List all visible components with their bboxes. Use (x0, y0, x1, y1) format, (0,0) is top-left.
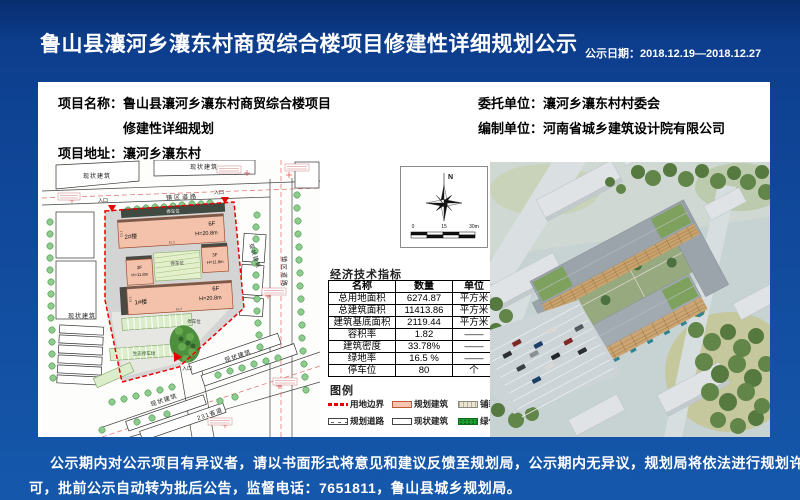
eco-parking-label: 生态停车场 (133, 350, 156, 357)
planned-road-swatch (328, 418, 348, 425)
paving-swatch (458, 401, 478, 408)
planned-buildings: 停车位 2#楼 6F H=20.8m 61.2 13.1 3F H=11.8m … (115, 203, 233, 316)
dim-label: 13.1 (119, 230, 123, 237)
col-name: 名称 (329, 281, 396, 293)
north-label: N (448, 174, 453, 181)
client-row: 委托单位：瀼河乡瀼东村村委会 (478, 93, 660, 112)
content-panel: 项目名称：鲁山县瀼河乡瀼东村商贸综合楼项目 修建性详细规划 项目地址：瀼河乡瀼东… (38, 82, 770, 437)
cell-name: 总用地面积 (329, 293, 396, 305)
cell-value: 1.82 (396, 329, 453, 341)
project-address-label: 项目地址： (58, 146, 123, 161)
entrance-label: 入口 (98, 198, 108, 204)
project-name-value: 鲁山县瀼河乡瀼东村商贸综合楼项目 (123, 96, 331, 111)
designer-label: 编制单位： (478, 121, 543, 136)
designer-row: 编制单位：河南省城乡建筑设计院有限公司 (478, 118, 725, 137)
project-name-value2: 修建性详细规划 (123, 121, 214, 136)
table-row: 总用地面积6274.87平方米 (329, 293, 496, 305)
building3-height: H=11.8m (131, 271, 149, 277)
table-row: 建筑基底面积2119.44平方米 (329, 317, 496, 329)
indicators-header-row: 名称 数量 单位 (329, 281, 496, 293)
cell-name: 建筑密度 (329, 341, 396, 353)
footer-line-2: 可，批前公示自动转为批后公告，监督电话：7651811，鲁山县城乡规划局。 (29, 478, 521, 498)
legend-label: 规划道路 (350, 415, 384, 427)
table-row: 建筑密度33.78%—— (329, 341, 496, 353)
building3r-height: H=11.8m (207, 259, 225, 265)
scale-0: 0 (412, 224, 415, 230)
client-label: 委托单位： (478, 96, 543, 111)
entrance-label: 入口 (182, 366, 192, 372)
site-plan-map: 停车位 2#楼 6F H=20.8m 61.2 13.1 3F H=11.8m … (42, 160, 320, 437)
existing-building-swatch (392, 418, 412, 425)
cell-value: 33.78% (396, 341, 453, 353)
entrance-label: 入口 (214, 190, 224, 196)
building3-floors: 3F (137, 265, 143, 270)
legend-label: 规划建筑 (414, 398, 448, 410)
legend-label: 现状建筑 (414, 415, 448, 427)
compass-star (426, 185, 462, 221)
cell-value: 2119.44 (396, 317, 453, 329)
legend-item-planned-road: 规划道路 (328, 415, 390, 427)
project-name-row2: 修建性详细规划 (123, 118, 214, 137)
footer-line-1: 公示期内对公示项目有异议者，请以书面形式将意见和建议反馈至规划局，公示期内无异议… (50, 453, 800, 473)
legend-label: 用地边界 (350, 398, 384, 410)
cell-value: 6274.87 (396, 293, 453, 305)
legend: 用地边界 规划建筑 铺装 规划道路 现状建筑 绿化 (328, 398, 498, 427)
cell-name: 容积率 (329, 329, 396, 341)
legend-item-planned-building: 规划建筑 (392, 398, 456, 410)
greening-swatch (458, 418, 478, 425)
table-row: 停车位80个 (329, 365, 496, 377)
dim-label: 61.2 (169, 240, 176, 244)
building2-floors: 6F (208, 221, 216, 227)
legend-item-existing-building: 现状建筑 (392, 415, 456, 427)
indicators-table: 名称 数量 单位 总用地面积6274.87平方米 总建筑面积11413.86平方… (328, 280, 496, 377)
planned-building-swatch (392, 401, 412, 408)
scale-30: 30m (469, 224, 479, 230)
compass-scale-box: N 0 15 30m (400, 166, 488, 248)
scale-15: 15 (441, 224, 447, 230)
col-quantity: 数量 (396, 281, 453, 293)
dim-label: 61.2 (176, 307, 183, 311)
compass-rose: N 0 15 30m (401, 167, 487, 247)
cell-name: 停车位 (329, 365, 396, 377)
project-name-label: 项目名称： (58, 96, 123, 111)
building1-floors: 6F (212, 286, 220, 292)
scale-bar (411, 232, 475, 238)
table-row: 容积率1.82—— (329, 329, 496, 341)
existing-building-label: 现状建筑 (68, 312, 96, 320)
cell-name: 总建筑面积 (329, 305, 396, 317)
client-value: 瀼河乡瀼东村村委会 (543, 96, 660, 111)
legend-title: 图例 (330, 382, 354, 398)
table-row: 绿地率16.5 %—— (329, 353, 496, 365)
existing-building-label: 现状建筑 (190, 163, 218, 171)
planning-notice-poster: 鲁山县瀼河乡瀼东村商贸综合楼项目修建性详细规划公示 公示日期：2018.12.1… (0, 0, 800, 500)
south-parking-label: 停车位 (187, 318, 201, 325)
cell-name: 建筑基底面积 (329, 317, 396, 329)
aerial-rendering (490, 162, 770, 437)
existing-building-label: 现状建筑 (83, 172, 111, 180)
project-address-value: 瀼河乡瀼东村 (123, 146, 201, 161)
notice-date: 公示日期：2018.12.19—2018.12.27 (585, 45, 761, 61)
town-road-label-right: 镇区道路 (280, 256, 288, 288)
designer-value: 河南省城乡建筑设计院有限公司 (543, 121, 725, 136)
table-row: 总建筑面积11413.86平方米 (329, 305, 496, 317)
page-title: 鲁山县瀼河乡瀼东村商贸综合楼项目修建性详细规划公示 (40, 28, 578, 58)
cell-value: 80 (396, 365, 453, 377)
cell-value: 16.5 % (396, 353, 453, 365)
dim-label: 13.1 (128, 296, 132, 303)
boundary-swatch (328, 403, 348, 406)
cell-value: 11413.86 (396, 305, 453, 317)
building3r-floors: 3F (212, 252, 218, 257)
cell-name: 绿地率 (329, 353, 396, 365)
project-name-row: 项目名称：鲁山县瀼河乡瀼东村商贸综合楼项目 (58, 93, 331, 112)
legend-item-boundary: 用地边界 (328, 398, 390, 410)
